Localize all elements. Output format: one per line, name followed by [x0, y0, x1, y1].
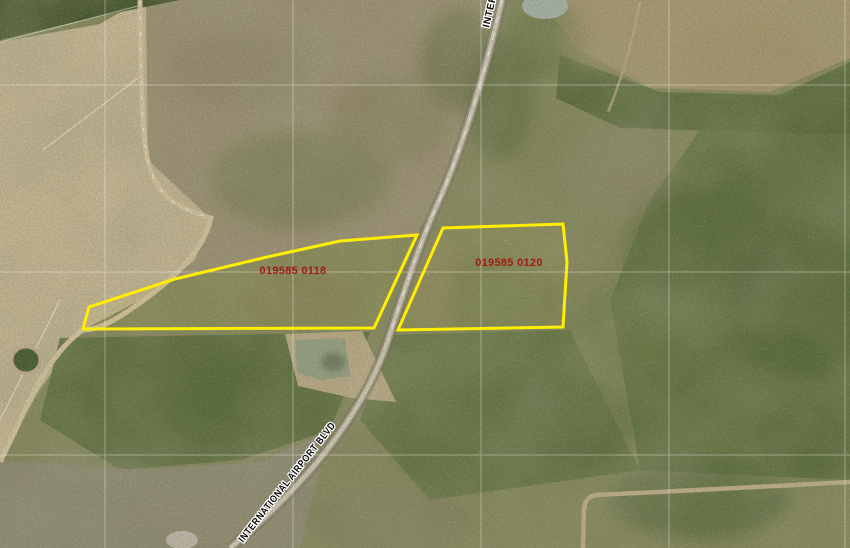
parcel-east-id-label: 019585 0120: [475, 257, 543, 269]
parcel-west-id-label: 019585 0118: [260, 265, 327, 277]
aerial-map[interactable]: 019585 0118 019585 0120 INTERNATIONAL AI…: [0, 0, 850, 548]
aerial-imagery: 019585 0118 019585 0120 INTERNATIONAL AI…: [0, 0, 850, 548]
